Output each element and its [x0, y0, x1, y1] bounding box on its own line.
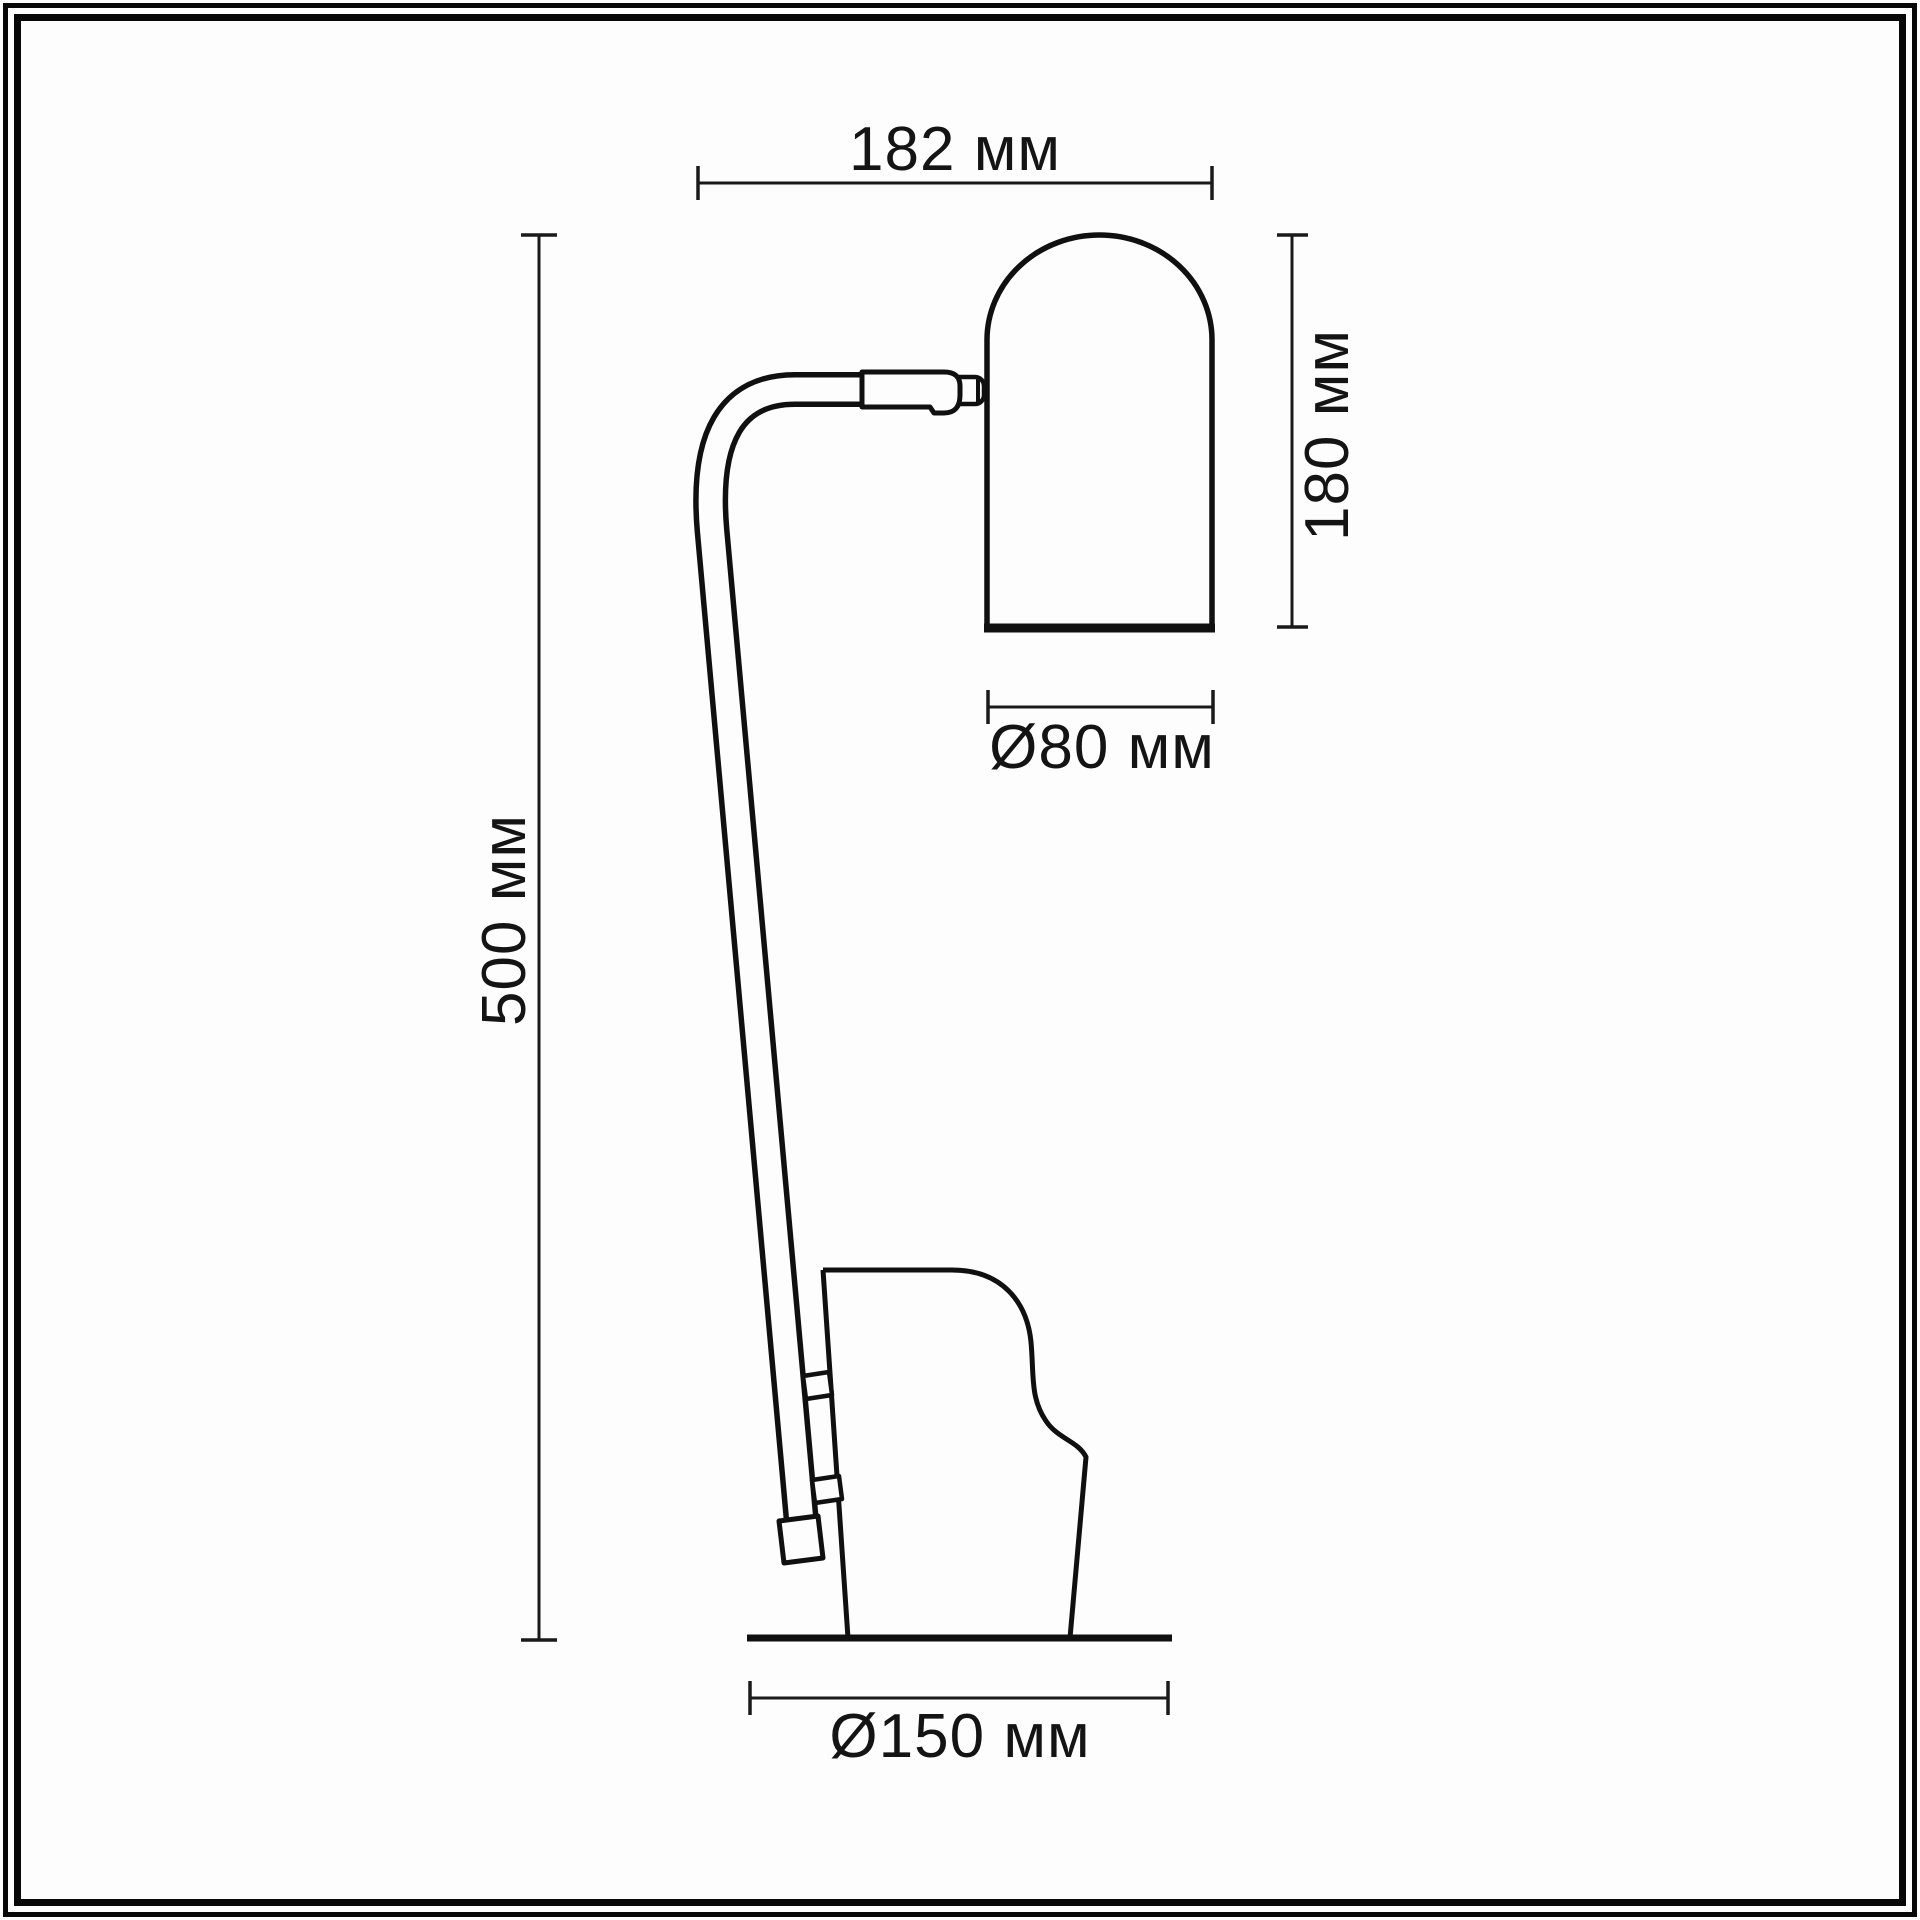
dimension-annotations: 182 мм 180 мм Ø80 мм 500 мм	[470, 115, 1362, 1771]
dimension-overall-width: 182 мм	[698, 115, 1212, 200]
technical-drawing-page: { "canvas": { "background": "#fdfdfd", "…	[0, 0, 1920, 1920]
dim-base-dia-label: Ø150 мм	[829, 1702, 1090, 1771]
lamp-dimension-drawing: 182 мм 180 мм Ø80 мм 500 мм	[0, 0, 1920, 1920]
joint-sleeve	[862, 372, 960, 413]
dim-width-label: 182 мм	[849, 115, 1061, 184]
dimension-overall-height: 500 мм	[470, 235, 557, 1640]
lamp-figure	[711, 235, 1215, 1638]
stem-foot	[779, 1516, 823, 1563]
dimension-shade-diameter: Ø80 мм	[988, 690, 1215, 782]
dim-height-label: 500 мм	[470, 814, 539, 1026]
dim-shade-height-label: 180 мм	[1293, 329, 1362, 541]
dimension-shade-height: 180 мм	[1277, 235, 1362, 627]
stem-clamp-upper	[803, 1372, 832, 1399]
stem-clamp-lower	[812, 1476, 842, 1503]
dim-shade-dia-label: Ø80 мм	[989, 713, 1215, 782]
base-outline	[823, 1270, 1086, 1638]
shade-outline	[987, 235, 1212, 628]
dimension-base-diameter: Ø150 мм	[750, 1681, 1168, 1771]
